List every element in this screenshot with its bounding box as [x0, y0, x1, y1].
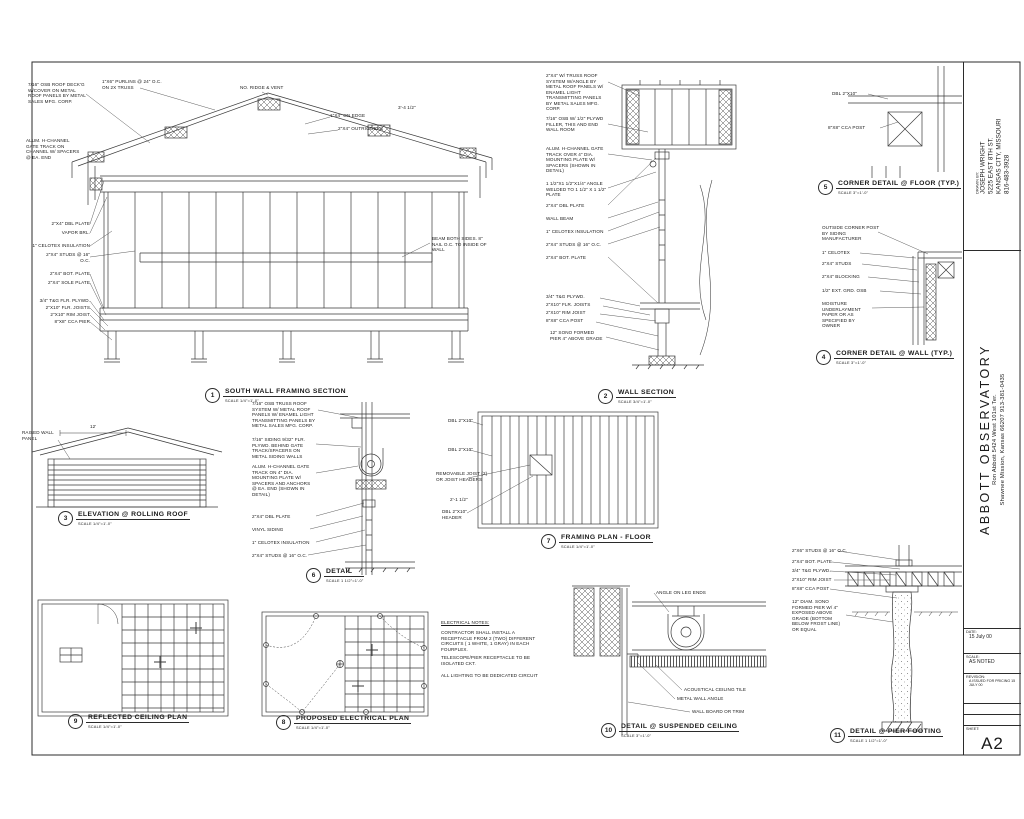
annotation-label: 7/16" SIDING 9/32" FLR. PLYWD. BEHIND GA…: [252, 437, 316, 459]
title-block-info: DATE: 15 July 00 SCALE: AS NOTED REVISIO…: [964, 629, 1021, 755]
detail-title-3: 3ELEVATION @ ROLLING ROOFSCALE 1/4"=1'-0…: [58, 511, 190, 526]
detail-title-9: 9REFLECTED CEILING PLANSCALE 1/4"=1'-0": [68, 714, 189, 729]
annotation-label: 1"X6" PURLINS @ 24" O.C. ON 2X TRUSS: [102, 79, 166, 90]
framing-plan-floor-drawing: [478, 412, 658, 528]
detail-scale-label: SCALE 1/4"=1'-0": [294, 725, 411, 730]
annotation-label: 8"X8" CCA PIER: [28, 319, 90, 325]
annotation-label: DBL 2"X10": [448, 447, 473, 453]
annotation-label: VAPOR BRL.: [28, 230, 90, 236]
annotation-label: 8"X8" CCA POST: [828, 125, 865, 131]
detail-number-bubble: 8: [276, 715, 291, 730]
detail-title-5: 5CORNER DETAIL @ FLOOR (TYP.)SCALE 3"=1'…: [818, 180, 961, 195]
sheet-number: A2: [966, 734, 1019, 754]
annotation-label: BEAM BOTH SIDES. 8" NAIL O.C. TO INSIDE …: [432, 236, 488, 253]
annotation-label: 2"X4" BOT. PLATE: [792, 559, 832, 565]
detail-title-label: PROPOSED ELECTRICAL PLAN: [294, 715, 411, 724]
annotation-label: REMOVABLE JOIST (2) OR JOIST HEADERS: [436, 471, 488, 482]
detail-number-bubble: 9: [68, 714, 83, 729]
annotation-label: 2"X6" STUDS @ 16" O.C.: [792, 548, 847, 554]
annotation-label: VINYL SIDING: [252, 527, 283, 533]
project-title: ABBOTT OBSERVATORY: [978, 344, 992, 535]
annotation-label: 1 1/2"X1 1/2"X1/4" ANGLE WELDED TO 1 1/2…: [546, 181, 608, 198]
annotation-label: 7/16" OSB W/ 1/2" PLYWD FILLER, THIS AND…: [546, 116, 604, 133]
title-block-project: ABBOTT OBSERVATORY Ron Abbott 5424 West …: [964, 251, 1021, 629]
annotation-label: 3/4" T&G PLYWD.: [546, 294, 585, 300]
sheet-row: SHEET: A2: [964, 726, 1021, 755]
annotation-label: 1/2" EXT. GRD. OSB: [822, 288, 867, 294]
annotation-label: RAISED WALL PANEL: [22, 430, 56, 441]
proposed-electrical-plan-drawing: [262, 612, 428, 716]
annotation-label: 2"X10" FLR. JOISTS: [546, 302, 590, 308]
detail-number-bubble: 2: [598, 389, 613, 404]
annotation-label: WALL BOARD OR TRIM: [692, 709, 744, 715]
annotation-label: ALUM. H-CHANNEL GATE TRACK ON CHANNEL W/…: [26, 138, 82, 160]
date-row: DATE: 15 July 00: [964, 629, 1021, 654]
annotation-label: 3/4" T&G FLR. PLYWD.: [28, 298, 90, 304]
detail-title-label: DETAIL: [324, 568, 364, 577]
annotation-label: ANGLE ON LEG ENDS: [656, 590, 706, 596]
project-city-phone: Shawnee Mission, Kansas 66207 913-381-04…: [1000, 344, 1008, 535]
detail-title-label: SOUTH WALL FRAMING SECTION: [223, 388, 348, 397]
detail-scale-label: SCALE 3/4"=1'-0": [616, 399, 676, 404]
detail-number-bubble: 7: [541, 534, 556, 549]
detail-title-1: 1SOUTH WALL FRAMING SECTIONSCALE 1/4"=1'…: [205, 388, 348, 403]
annotation-label: 2"X4" SOLE PLATE: [28, 280, 90, 286]
annotation-label: ELECTRICAL NOTES:: [441, 620, 489, 626]
detail-scale-label: SCALE 3"=1'-0": [619, 733, 739, 738]
detail-number-bubble: 10: [601, 723, 616, 738]
revision-value: A ISSUED FOR PRICING 15 JULY 00: [966, 679, 1019, 688]
title-block: DRAWN BY: JOSEPH WRIGHT 5225 EAST 8TH ST…: [963, 62, 1021, 755]
annotation-label: 2"X4" STUDS @ 16" O.C.: [252, 553, 307, 559]
annotation-label: CONTRACTOR SHALL INSTALL A RECEPTACLE FR…: [441, 630, 543, 652]
annotation-label: DBL 2"X10" HEADER: [442, 509, 484, 520]
detail-6-drawing: [340, 402, 415, 575]
annotation-label: TELESCOPE/PIER RECEPTACLE TO BE ISOLATED…: [441, 655, 541, 666]
annotation-label: 2"X4" BOT. PLATE: [28, 271, 90, 277]
detail-number-bubble: 3: [58, 511, 73, 526]
annotation-label: 2"X10" RIM JOIST: [546, 310, 586, 316]
annotation-label: 8"X8" CCA POST: [792, 586, 829, 592]
annotation-label: 2"X4" OUTRIGGERS: [338, 126, 383, 132]
detail-title-label: WALL SECTION: [616, 389, 676, 398]
annotation-label: 2"X10" RIM JOIST: [792, 577, 832, 583]
detail-title-label: DETAIL @ SUSPENDED CEILING: [619, 723, 739, 732]
annotation-label: ACOUSTICAL CEILING TILE: [684, 687, 746, 693]
detail-title-6: 6DETAILSCALE 1 1/2"=1'-0": [306, 568, 364, 583]
elevation-rolling-roof-drawing: [32, 428, 222, 507]
detail-title-label: REFLECTED CEILING PLAN: [86, 714, 189, 723]
wall-section-drawing: [622, 80, 736, 369]
annotation-label: DBL 2"X10": [448, 418, 473, 424]
detail-title-11: 11DETAIL @ PIER FOOTINGSCALE 1 1/2"=1'-0…: [830, 728, 943, 743]
annotation-label: 2"X4" W/ TRUSS ROOF SYSTEM W/ANGLE BY ME…: [546, 73, 608, 112]
detail-title-label: FRAMING PLAN - FLOOR: [559, 534, 653, 543]
annotation-label: 7/16" OSB ROOF DECK'G W/COVER ON METAL R…: [28, 82, 86, 104]
annotation-label: 3/4" T&G PLYWD.: [792, 568, 831, 574]
detail-title-label: CORNER DETAIL @ WALL (TYP.): [834, 350, 954, 359]
annotation-label: ALUM. H-CHANNEL GATE TRACK OVER 4" DIA. …: [546, 146, 606, 174]
annotation-label: 8"X8" CCA POST: [546, 318, 583, 324]
detail-scale-label: SCALE 3"=1'-0": [836, 190, 961, 195]
annotation-label: NO. RIDGE & VENT: [240, 85, 283, 91]
drawn-by-name: JOSEPH WRIGHT: [979, 118, 987, 193]
corner-detail-floor-drawing: [848, 66, 962, 178]
annotation-label: 1" CELOTEX INSULATION: [546, 229, 604, 235]
annotation-label: 2"X4" DBL PLATE: [252, 514, 290, 520]
title-block-drawn-by: DRAWN BY: JOSEPH WRIGHT 5225 EAST 8TH ST…: [964, 62, 1021, 251]
detail-number-bubble: 4: [816, 350, 831, 365]
detail-scale-label: SCALE 1/4"=1'-0": [559, 544, 653, 549]
annotation-label: 2"X4" BLOCKING: [822, 274, 860, 280]
detail-number-bubble: 5: [818, 180, 833, 195]
drawing-sheet: DRAWN BY: JOSEPH WRIGHT 5225 EAST 8TH ST…: [0, 0, 1024, 819]
annotation-label: METAL WALL ANGLE: [677, 696, 723, 702]
annotation-label: 2"X10" RIM JOIST: [28, 312, 90, 318]
revision-row: REVISION: A ISSUED FOR PRICING 15 JULY 0…: [964, 674, 1021, 704]
annotation-label: 2"X4" STUDS: [822, 261, 851, 267]
detail-title-label: CORNER DETAIL @ FLOOR (TYP.): [836, 180, 961, 189]
detail-scale-label: SCALE 1/4"=1'-0": [223, 398, 348, 403]
scale-value: AS NOTED: [966, 659, 1019, 665]
detail-scale-label: SCALE 3"=1'-0": [834, 360, 954, 365]
detail-title-label: DETAIL @ PIER FOOTING: [848, 728, 943, 737]
drawn-by-phone: 816-483-3928: [1003, 118, 1011, 193]
detail-title-4: 4CORNER DETAIL @ WALL (TYP.)SCALE 3"=1'-…: [816, 350, 954, 365]
annotation-label: 2'-1 1/2": [450, 497, 468, 503]
annotation-label: 1"X4" ON EDGE: [330, 113, 365, 119]
blank-row: [964, 704, 1021, 715]
sheet-label: SHEET:: [966, 727, 1019, 731]
annotation-label: 12" DIAM. SONO FORMED PIER W/ 4" EXPOSED…: [792, 599, 848, 632]
date-value: 15 July 00: [966, 634, 1019, 640]
annotation-label: OUTSIDE CORNER POST BY SIDING MANUFACTUR…: [822, 225, 880, 242]
detail-title-7: 7FRAMING PLAN - FLOORSCALE 1/4"=1'-0": [541, 534, 653, 549]
detail-scale-label: SCALE 1/4"=1'-0": [86, 724, 189, 729]
annotation-label: 2"X4" DBL PLATE: [546, 203, 584, 209]
annotation-label: 3'-4 1/2": [398, 105, 416, 111]
reflected-ceiling-plan-drawing: [38, 600, 228, 716]
annotation-label: 12': [90, 424, 96, 430]
detail-scale-label: SCALE 1/4"=1'-0": [76, 521, 190, 526]
annotation-label: 2"X10" FLR. JOISTS: [28, 305, 90, 311]
detail-scale-label: SCALE 1 1/2"=1'-0": [324, 578, 364, 583]
detail-number-bubble: 6: [306, 568, 321, 583]
detail-scale-label: SCALE 1 1/2"=1'-0": [848, 738, 943, 743]
annotation-label: 2"X4" STUDS @ 16" O.C.: [40, 252, 90, 263]
south-wall-framing-section-drawing: [72, 93, 492, 362]
detail-number-bubble: 1: [205, 388, 220, 403]
drawing-linework: [0, 0, 1024, 819]
drawn-by-city: KANSAS CITY, MISSOURI: [995, 118, 1003, 193]
annotation-label: MOISTURE UNDERLAYMENT PAPER OR AS SPECIF…: [822, 301, 874, 329]
annotation-label: ALL LIGHTING TO BE DEDICATED CIRCUIT: [441, 673, 543, 679]
annotation-label: WALL BEAM: [546, 216, 573, 222]
drawn-by-street: 5225 EAST 8TH ST.: [987, 118, 995, 193]
annotation-label: DBL 2"X10": [832, 91, 857, 97]
detail-number-bubble: 11: [830, 728, 845, 743]
annotation-label: 7/16" OSB TRUSS ROOF SYSTEM W/ METAL ROO…: [252, 401, 318, 429]
project-owner-address: Ron Abbott 5424 West 101st Ter.: [992, 344, 1000, 535]
annotation-label: ALUM. H-CHANNEL GATE TRACK ON 4" DIA. MO…: [252, 464, 316, 497]
annotation-label: 1" CELOTEX INSULATION: [252, 540, 310, 546]
detail-title-2: 2WALL SECTIONSCALE 3/4"=1'-0": [598, 389, 676, 404]
annotation-label: 2"X4" BOT. PLATE: [546, 255, 586, 261]
annotation-label: 2"X4" DBL PLATE: [28, 221, 90, 227]
corner-detail-wall-drawing: [913, 252, 962, 345]
annotation-label: 1" CELOTEX: [822, 250, 850, 256]
detail-title-label: ELEVATION @ ROLLING ROOF: [76, 511, 190, 520]
annotation-label: 2"X4" STUDS @ 16" O.C.: [546, 242, 601, 248]
annotation-label: 1" CELOTEX INSULATION: [28, 243, 90, 249]
annotation-label: 12" SONO FORMED PIER 4" ABOVE GRADE: [550, 330, 604, 341]
detail-title-10: 10DETAIL @ SUSPENDED CEILINGSCALE 3"=1'-…: [601, 723, 739, 738]
scale-row: SCALE: AS NOTED: [964, 654, 1021, 674]
blank-row: [964, 715, 1021, 726]
detail-title-8: 8PROPOSED ELECTRICAL PLANSCALE 1/4"=1'-0…: [276, 715, 411, 730]
